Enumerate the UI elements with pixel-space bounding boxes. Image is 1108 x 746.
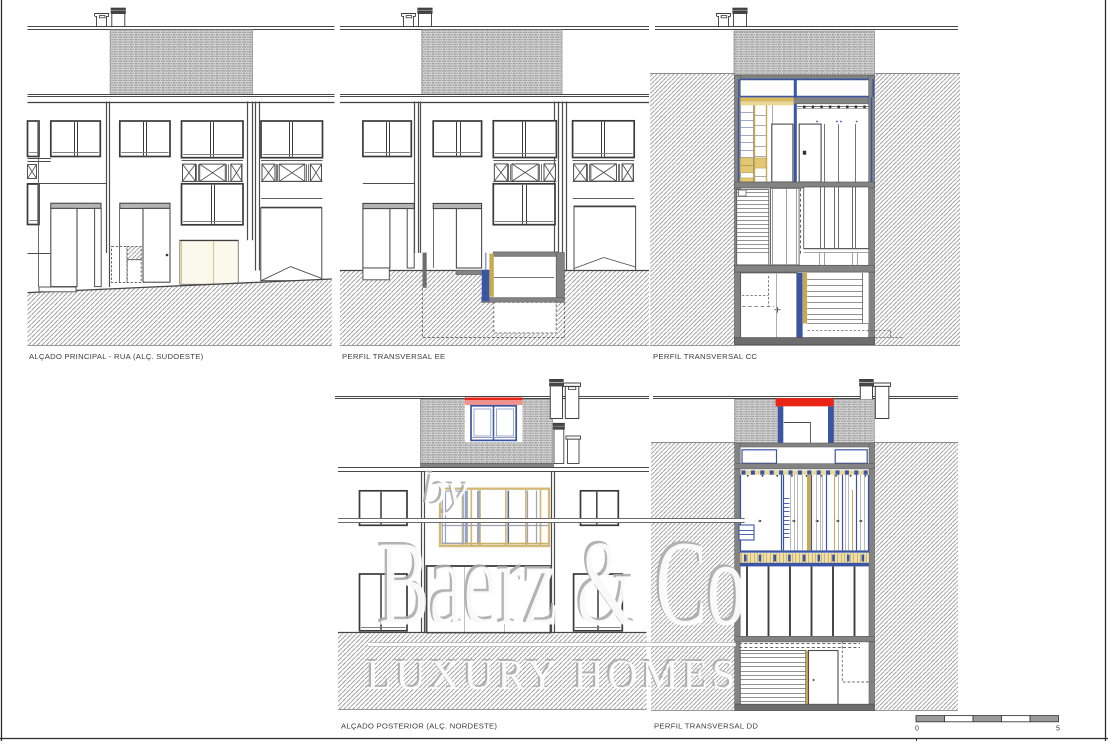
svg-text:PERFIL TRANSVERSAL DD: PERFIL TRANSVERSAL DD [654,722,758,731]
svg-text:PERFIL TRANSVERSAL EE: PERFIL TRANSVERSAL EE [342,352,445,361]
svg-text:0: 0 [915,726,919,733]
svg-text:ALÇADO PRINCIPAL - RUA (ALÇ. S: ALÇADO PRINCIPAL - RUA (ALÇ. SUDOESTE) [29,352,204,361]
svg-text:ALÇADO POSTERIOR (ALÇ. NORDEST: ALÇADO POSTERIOR (ALÇ. NORDESTE) [341,722,497,731]
svg-text:LUXURY HOMES: LUXURY HOMES [366,653,737,699]
svg-text:Baerz & Co: Baerz & Co [378,516,745,651]
svg-text:PERFIL TRANSVERSAL CC: PERFIL TRANSVERSAL CC [653,352,757,361]
svg-text:by: by [423,464,468,516]
svg-text:5: 5 [1056,726,1060,733]
